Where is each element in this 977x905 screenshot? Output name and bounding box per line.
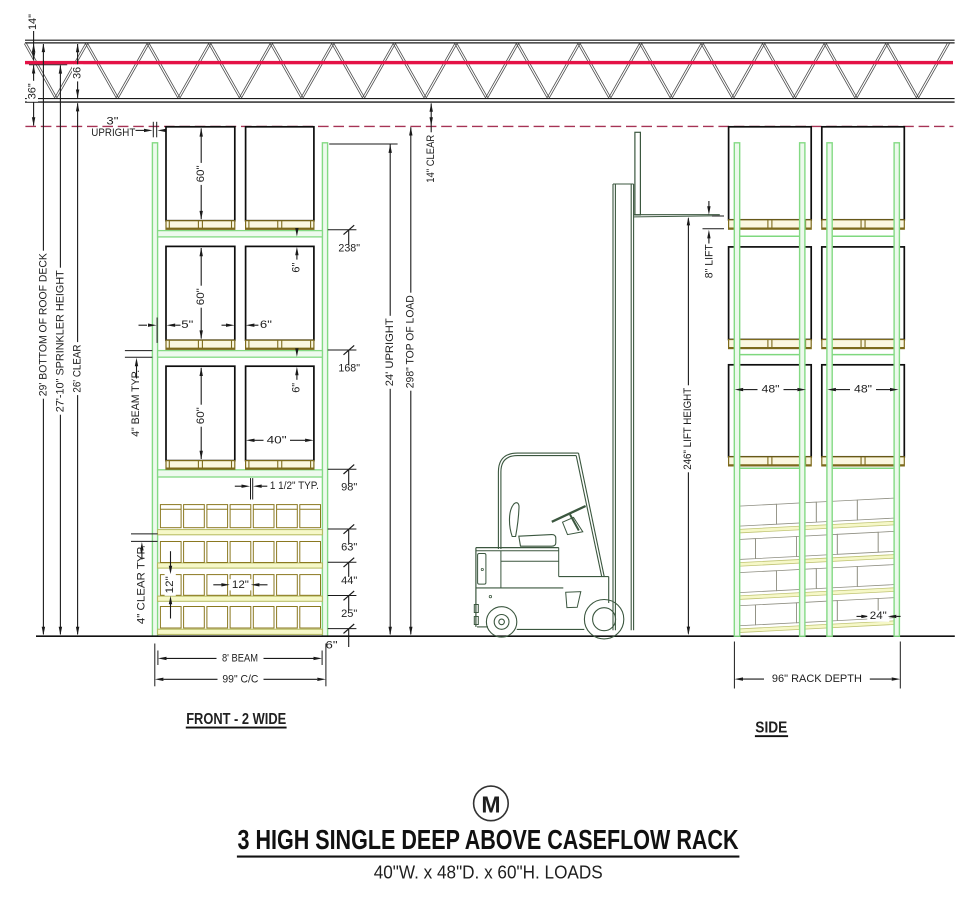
- svg-text:6": 6": [260, 319, 272, 331]
- svg-text:1 1/2" TYP.: 1 1/2" TYP.: [270, 480, 319, 492]
- svg-text:26' CLEAR: 26' CLEAR: [72, 344, 84, 392]
- svg-text:48": 48": [854, 384, 872, 396]
- svg-text:8' BEAM: 8' BEAM: [222, 652, 258, 664]
- svg-text:4" BEAM TYP.: 4" BEAM TYP.: [130, 370, 142, 437]
- svg-text:UPRIGHT: UPRIGHT: [91, 127, 135, 139]
- svg-text:24": 24": [870, 610, 887, 622]
- svg-text:98": 98": [341, 482, 357, 494]
- svg-text:4" CLEAR TYP.: 4" CLEAR TYP.: [136, 545, 148, 624]
- svg-text:5": 5": [181, 319, 193, 331]
- svg-text:FRONT - 2 WIDE: FRONT - 2 WIDE: [186, 711, 286, 728]
- svg-text:SIDE: SIDE: [755, 719, 787, 736]
- svg-text:6": 6": [291, 383, 303, 393]
- svg-text:14": 14": [27, 14, 39, 30]
- svg-text:40": 40": [267, 434, 287, 446]
- svg-text:3": 3": [106, 115, 118, 127]
- svg-text:24' UPRIGHT: 24' UPRIGHT: [384, 318, 396, 386]
- svg-text:14" CLEAR: 14" CLEAR: [425, 135, 437, 183]
- svg-text:99" C/C: 99" C/C: [222, 673, 258, 685]
- svg-text:60": 60": [195, 407, 207, 424]
- svg-text:96" RACK DEPTH: 96" RACK DEPTH: [772, 673, 862, 685]
- svg-text:44": 44": [341, 575, 357, 587]
- svg-text:36: 36: [72, 67, 84, 79]
- svg-text:12": 12": [232, 579, 249, 591]
- svg-text:63": 63": [341, 542, 357, 554]
- svg-text:168": 168": [338, 363, 360, 375]
- svg-text:238": 238": [338, 242, 360, 254]
- svg-text:60": 60": [195, 165, 207, 182]
- svg-text:6": 6": [326, 640, 338, 652]
- svg-text:60": 60": [195, 288, 207, 305]
- svg-text:3 HIGH SINGLE DEEP ABOVE CASEF: 3 HIGH SINGLE DEEP ABOVE CASEFLOW RACK: [238, 824, 739, 855]
- svg-text:M: M: [481, 792, 500, 818]
- svg-text:25": 25": [341, 608, 357, 620]
- svg-text:36": 36": [26, 83, 38, 99]
- svg-text:40"W. x 48"D. x 60"H. LOADS: 40"W. x 48"D. x 60"H. LOADS: [374, 862, 603, 883]
- svg-text:246" LIFT HEIGHT: 246" LIFT HEIGHT: [682, 387, 694, 469]
- svg-text:298" TOP OF LOAD: 298" TOP OF LOAD: [405, 295, 417, 388]
- svg-text:27'-10" SPRINKLER HEIGHT: 27'-10" SPRINKLER HEIGHT: [54, 270, 66, 412]
- svg-text:48": 48": [762, 384, 780, 396]
- svg-text:8" LIFT: 8" LIFT: [704, 244, 716, 278]
- svg-text:29' BOTTOM OF ROOF DECK: 29' BOTTOM OF ROOF DECK: [37, 252, 49, 396]
- svg-text:12": 12": [164, 576, 176, 593]
- svg-text:6": 6": [291, 262, 303, 272]
